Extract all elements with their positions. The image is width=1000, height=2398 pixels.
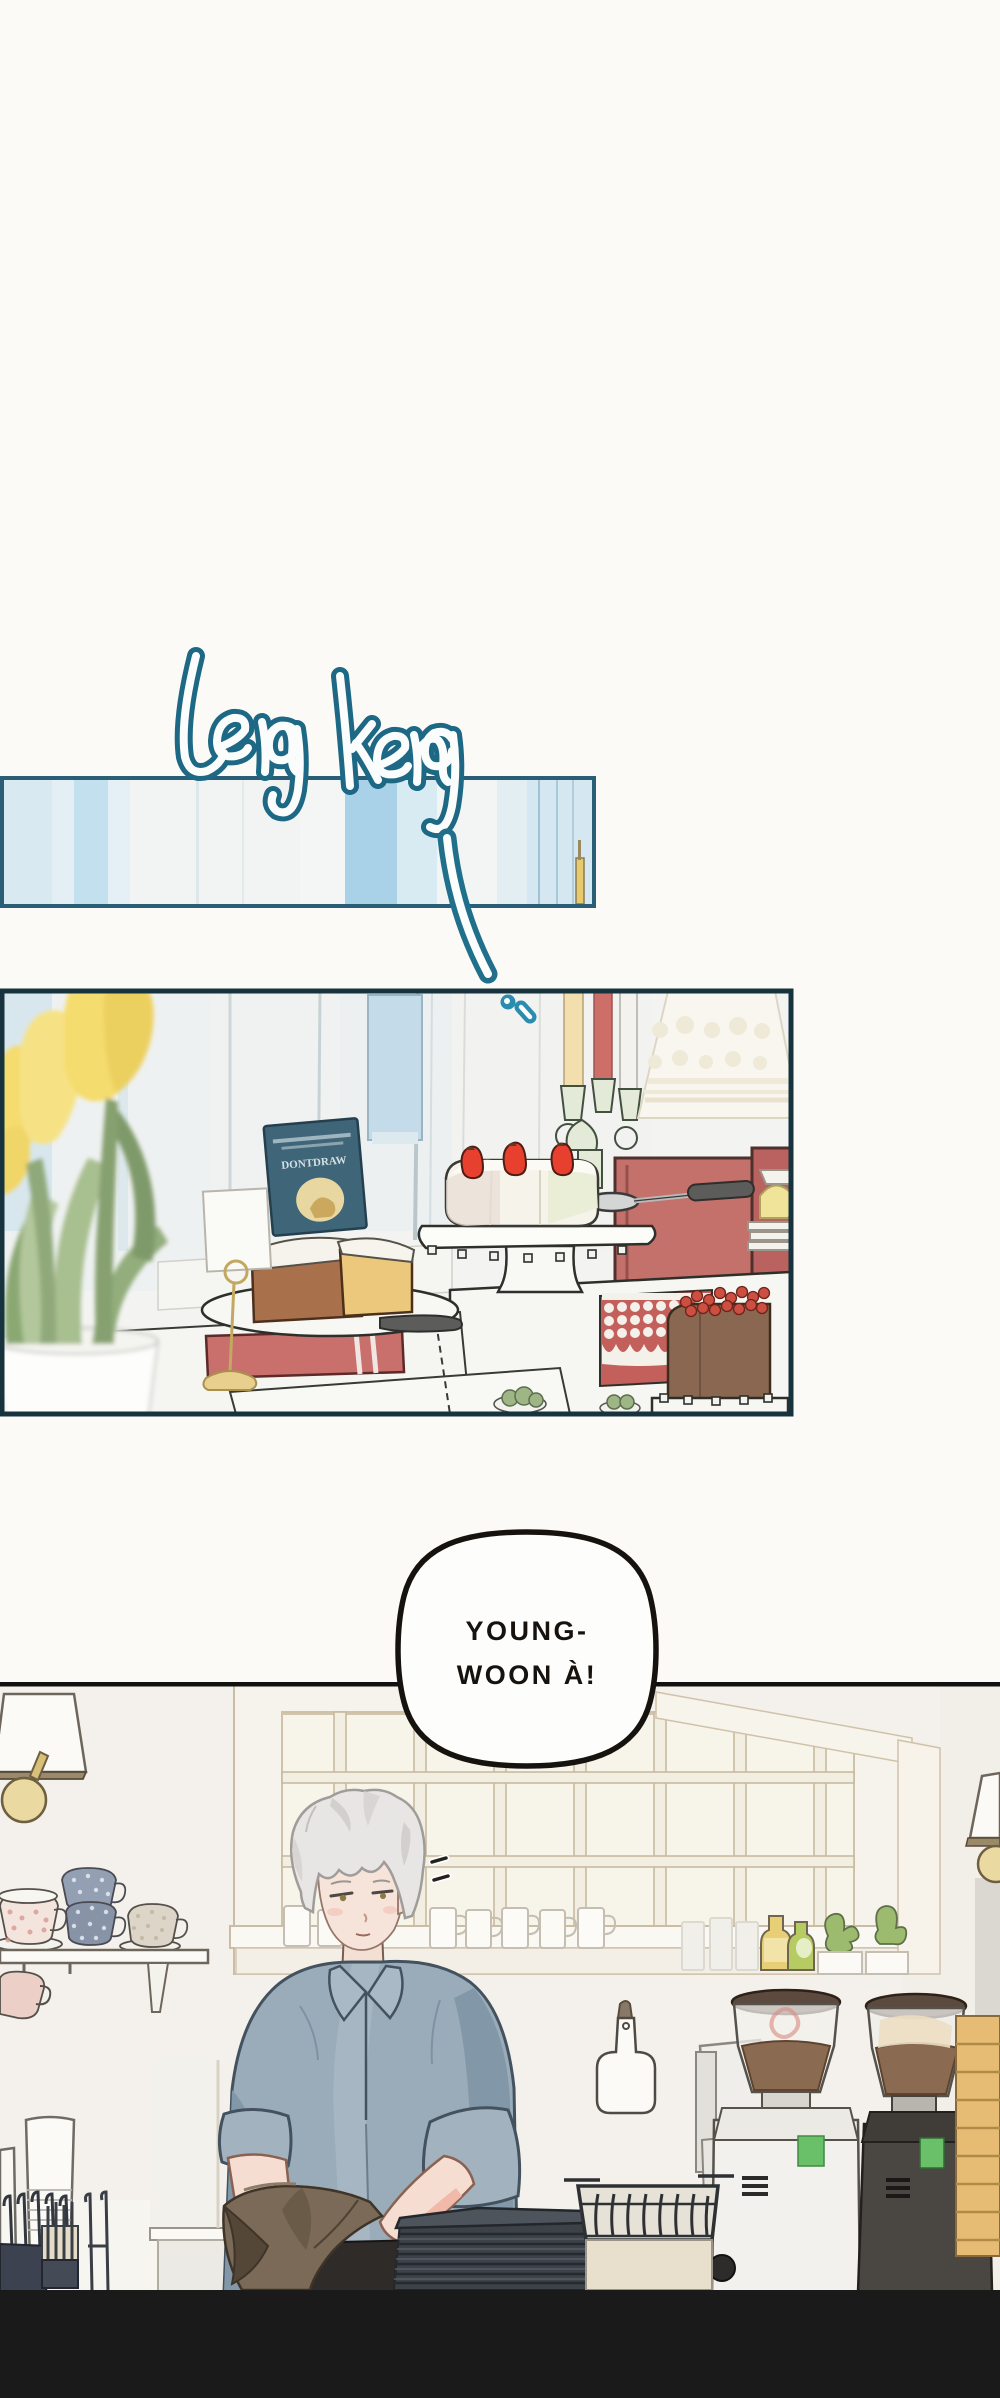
svg-text:WOON À!: WOON À! <box>457 1659 597 1690</box>
svg-text:YOUNG-: YOUNG- <box>466 1616 589 1646</box>
